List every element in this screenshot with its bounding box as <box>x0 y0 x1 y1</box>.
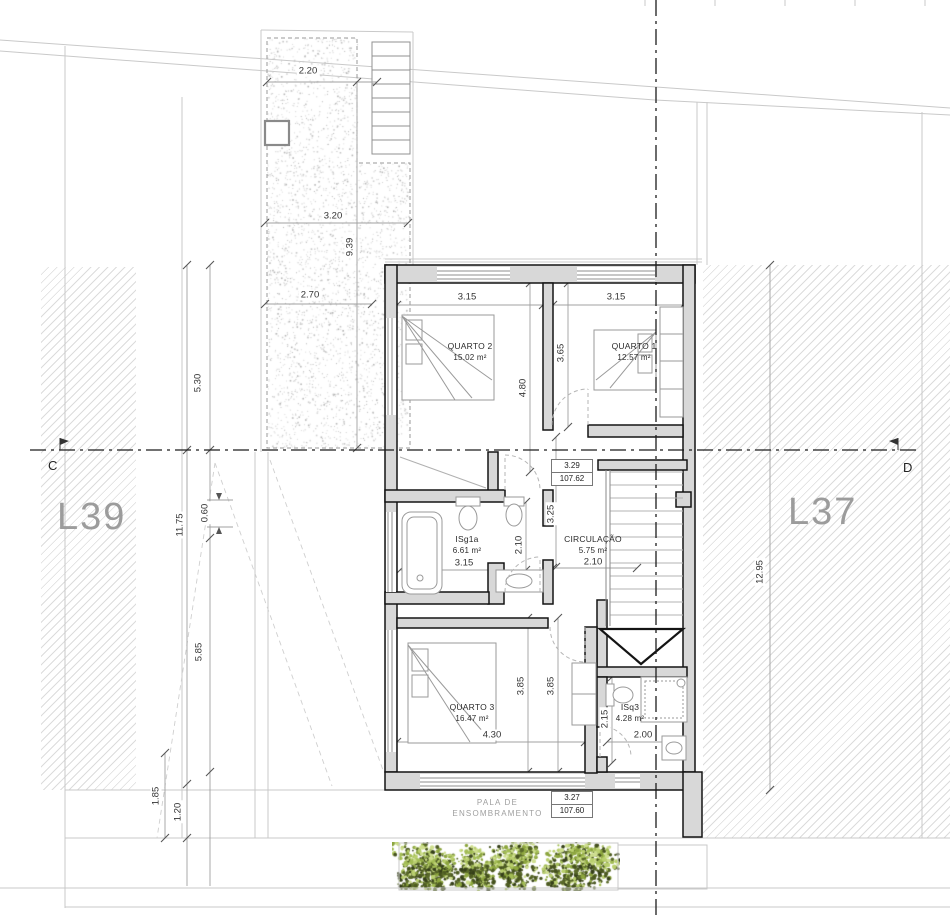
room-label-quarto3: QUARTO 316.47 m² <box>450 702 495 724</box>
dimension-label: 4.30 <box>481 730 504 741</box>
dimension-label: 4.80 <box>518 377 529 400</box>
floor-plan-drawing: L39 L37 C D PALA DE ENSOMBRAMENTO QUARTO… <box>0 0 950 917</box>
dimension-label: 3.65 <box>556 342 567 365</box>
dimension-label: 3.85 <box>516 675 527 698</box>
room-label-quarto2: QUARTO 215.02 m² <box>448 341 493 363</box>
room-label-isq3: ISq34.28 m² <box>616 702 645 724</box>
level-marker-pala-level: 3.27107.60 <box>551 791 593 818</box>
dimension-label: 2.20 <box>297 66 320 77</box>
dimension-label: 1.85 <box>151 785 162 808</box>
labels-layer: L39 L37 C D PALA DE ENSOMBRAMENTO QUARTO… <box>0 0 950 917</box>
dimension-label: 3.25 <box>546 503 557 526</box>
dimension-label: 5.30 <box>193 372 204 395</box>
dimension-label: 1.20 <box>173 801 184 824</box>
dimension-label: 3.85 <box>546 675 557 698</box>
dimension-label: 2.15 <box>600 708 611 731</box>
room-label-quarto1: QUARTO 112.57 m² <box>612 341 657 363</box>
room-label-isg1a: ISg1a6.61 m² <box>453 534 482 556</box>
section-marker-c: C <box>48 458 57 473</box>
dimension-label: 3.15 <box>453 558 476 569</box>
dimension-label: 5.85 <box>194 641 205 664</box>
section-marker-d: D <box>903 460 912 475</box>
dimension-label: 2.10 <box>582 557 605 568</box>
dimension-label: 2.70 <box>299 290 322 301</box>
lot-label-l37: L37 <box>788 491 857 534</box>
lot-label-l39: L39 <box>57 496 126 539</box>
room-label-circulacao: CIRCULAÇÃO5.75 m² <box>564 534 622 556</box>
dimension-label: 2.00 <box>632 730 655 741</box>
dimension-label: 3.15 <box>605 292 628 303</box>
dimension-label: 9.39 <box>345 236 356 259</box>
dimension-label: 11.75 <box>175 511 186 538</box>
dimension-label: 12.95 <box>755 558 766 586</box>
dimension-label: 0.60 <box>200 502 211 525</box>
dimension-label: 2.10 <box>514 534 525 557</box>
level-marker-floor-level: 3.29107.62 <box>551 459 593 486</box>
dimension-label: 3.15 <box>456 292 479 303</box>
dimension-label: 3.20 <box>322 211 345 222</box>
